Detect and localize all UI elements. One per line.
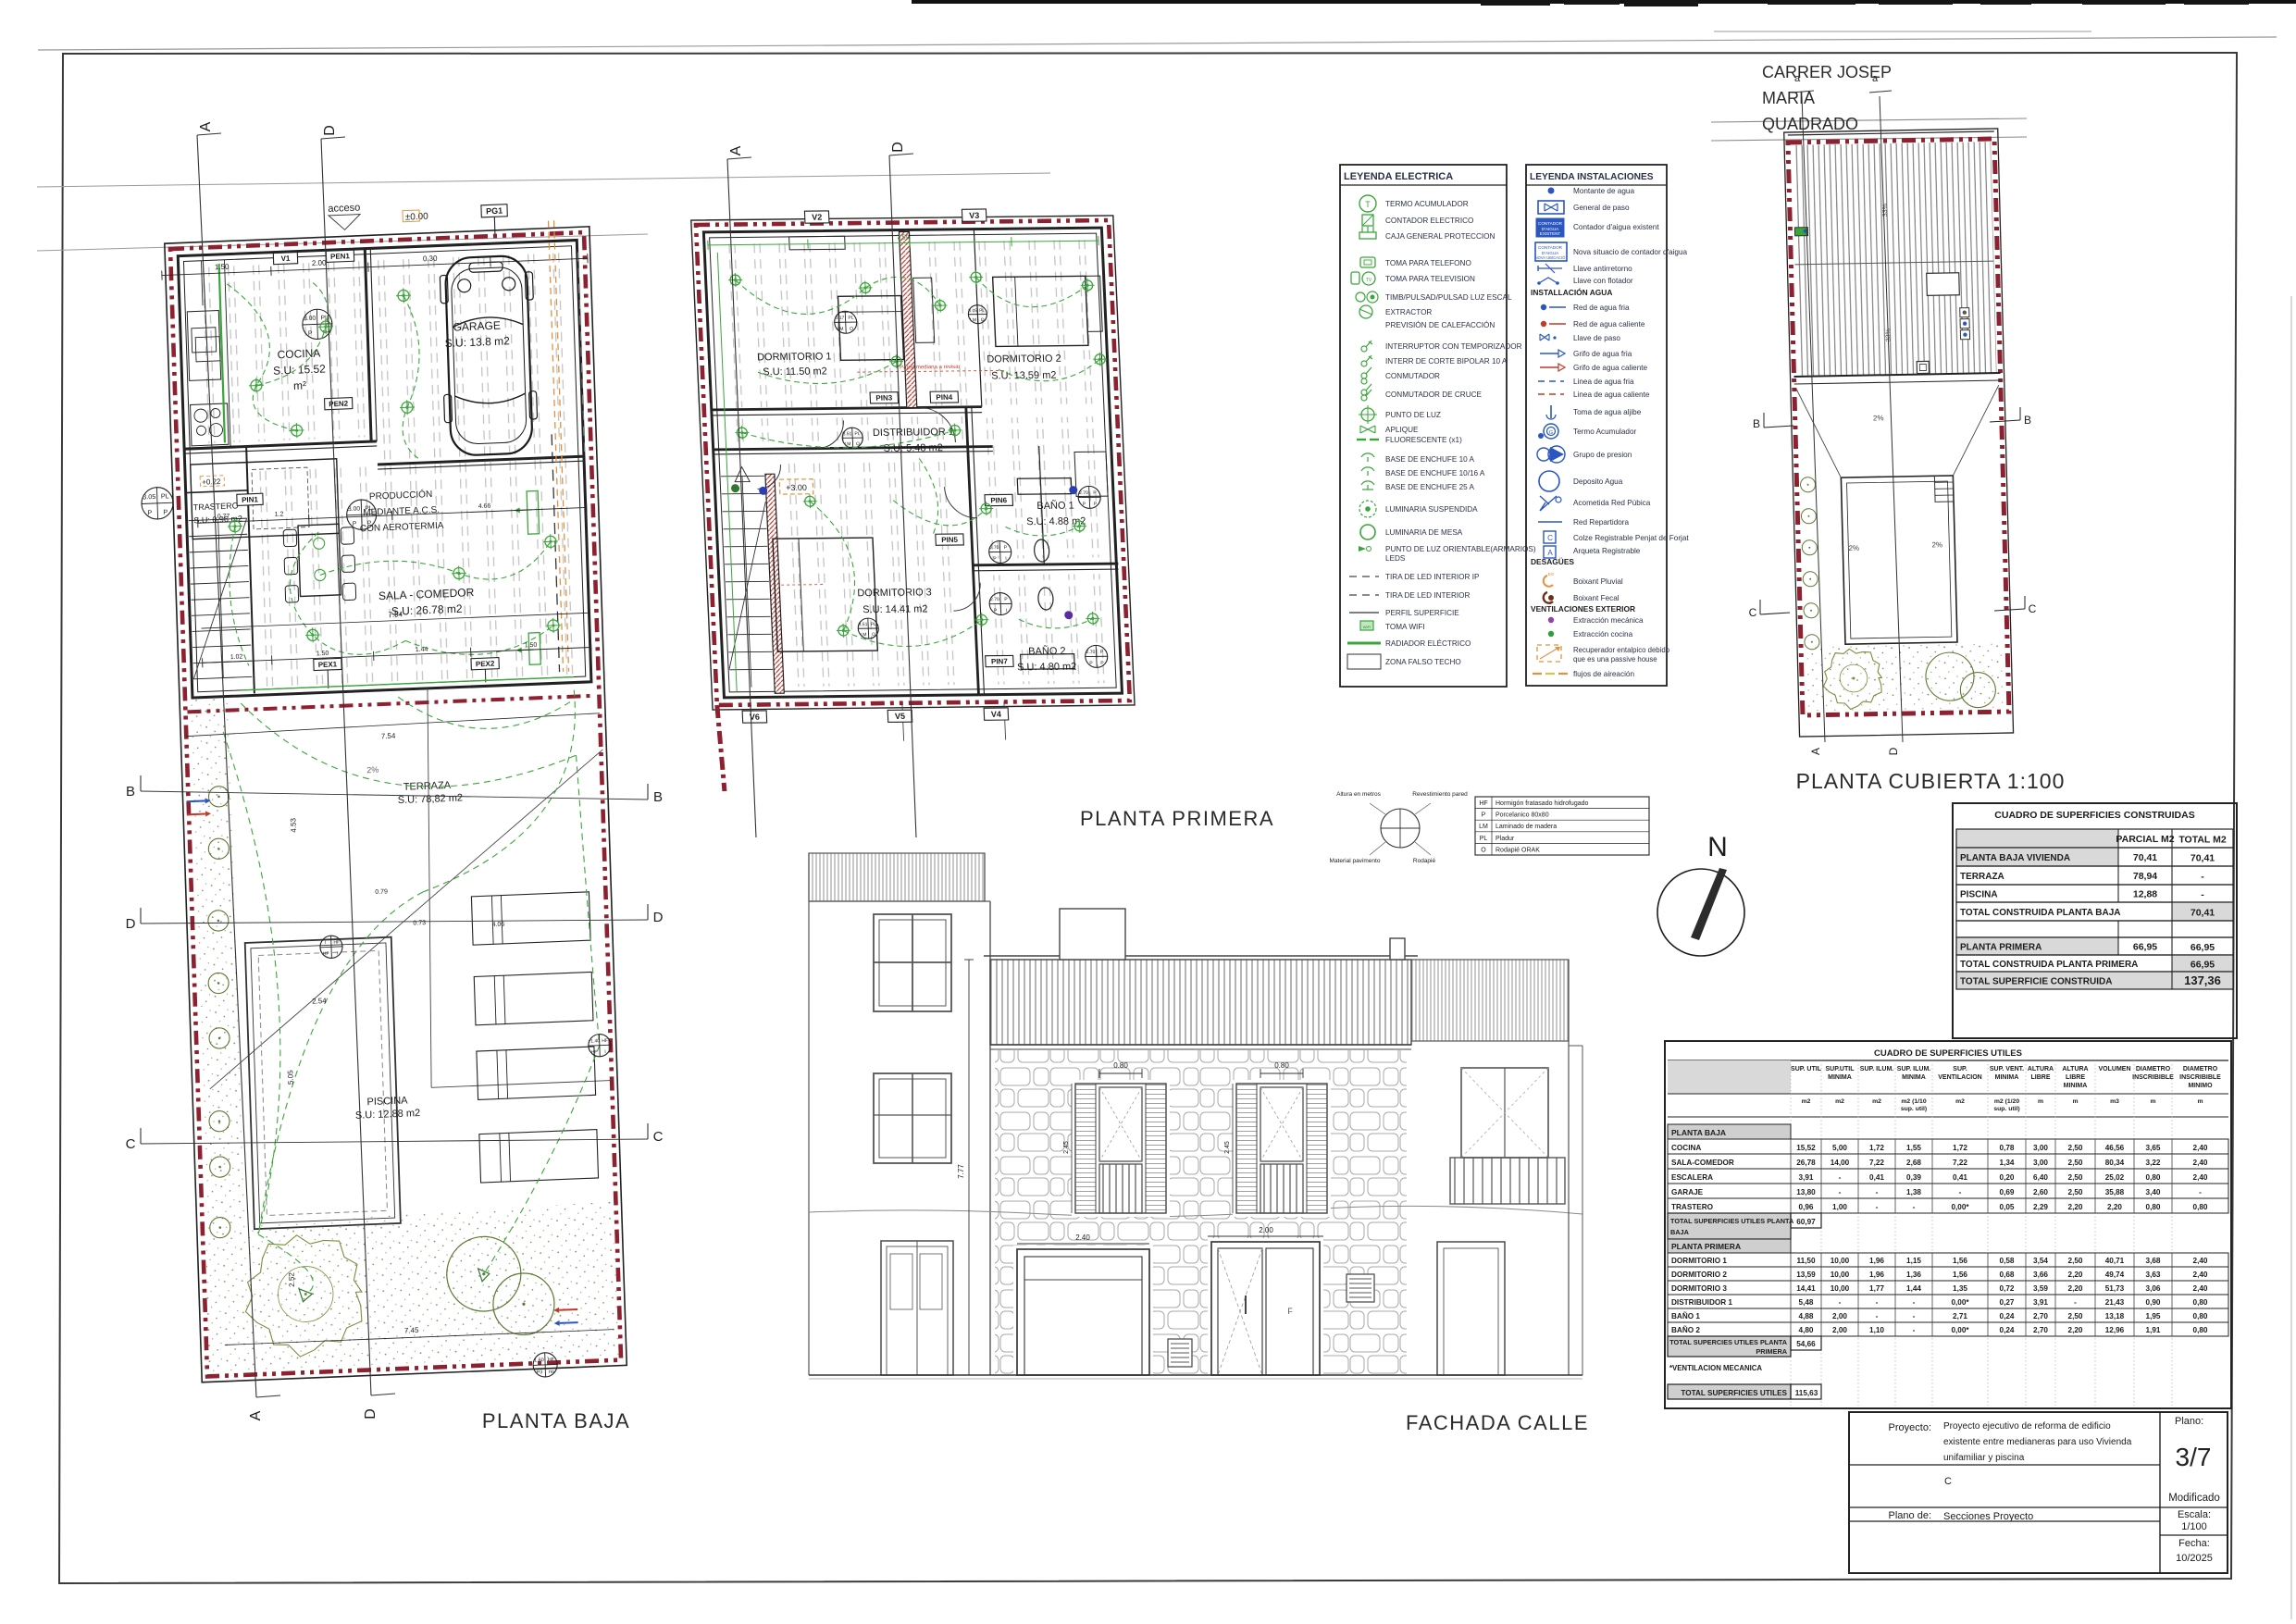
- svg-text:CUADRO DE SUPERFICIES CONSTRUI: CUADRO DE SUPERFICIES CONSTRUIDAS: [1994, 810, 2194, 821]
- svg-text:m2: m2: [1802, 1098, 1811, 1105]
- svg-text:TOTAL CONSTRUIDA PLANTA BAJA: TOTAL CONSTRUIDA PLANTA BAJA: [1960, 908, 2121, 918]
- svg-text:1.44: 1.44: [416, 647, 428, 654]
- svg-text:2,71: 2,71: [1953, 1312, 1967, 1320]
- svg-text:3/7: 3/7: [2176, 1443, 2212, 1471]
- svg-text:ZONA FALSO TECHO: ZONA FALSO TECHO: [1385, 658, 1461, 666]
- svg-text:O: O: [1481, 847, 1486, 853]
- svg-text:1,72: 1,72: [1953, 1144, 1967, 1152]
- svg-text:LM: LM: [1479, 824, 1488, 830]
- svg-text:HF: HF: [1479, 800, 1487, 807]
- svg-text:BAÑO 2: BAÑO 2: [1028, 645, 1066, 657]
- svg-text:0,80: 0,80: [2193, 1312, 2208, 1320]
- svg-text:Hormigón fratasado hidrofugado: Hormigón fratasado hidrofugado: [1496, 800, 1589, 807]
- svg-text:-: -: [1876, 1298, 1879, 1307]
- svg-text:1,96: 1,96: [1869, 1257, 1884, 1265]
- svg-text:21,43: 21,43: [2105, 1298, 2125, 1307]
- svg-text:1,35: 1,35: [1953, 1284, 1967, 1293]
- svg-text:Nova situacio de contador d'ai: Nova situacio de contador d'aigua: [1573, 248, 1688, 256]
- svg-text:MINIMA: MINIMA: [2064, 1083, 2088, 1089]
- svg-text:1,96: 1,96: [1869, 1271, 1884, 1279]
- svg-text:P: P: [367, 520, 372, 527]
- svg-text:S.U: 13.8 m2: S.U: 13.8 m2: [445, 334, 511, 350]
- svg-text:10,00: 10,00: [1831, 1271, 1850, 1279]
- svg-text:FACHADA CALLE: FACHADA CALLE: [1406, 1411, 1589, 1434]
- svg-text:V4: V4: [991, 710, 1001, 719]
- svg-text:Toma de agua aljibe: Toma de agua aljibe: [1573, 408, 1642, 416]
- svg-text:0,80: 0,80: [2193, 1298, 2208, 1307]
- svg-text:3.00: 3.00: [304, 316, 316, 323]
- svg-text:General de paso: General de paso: [1573, 204, 1630, 212]
- svg-text:PIN6: PIN6: [990, 496, 1008, 504]
- svg-text:DORMITORIO 1: DORMITORIO 1: [1671, 1257, 1727, 1265]
- svg-text:2,50: 2,50: [2068, 1173, 2083, 1182]
- svg-text:Arqueta Registrable: Arqueta Registrable: [1573, 547, 1641, 555]
- svg-text:2.00: 2.00: [1259, 1226, 1273, 1234]
- svg-text:P: P: [308, 330, 313, 337]
- svg-text:1,91: 1,91: [2146, 1326, 2161, 1334]
- svg-text:Acometida Red Púbica: Acometida Red Púbica: [1573, 499, 1651, 507]
- svg-text:A: A: [1809, 748, 1822, 755]
- svg-text:2,70: 2,70: [2033, 1312, 2048, 1320]
- svg-text:TOTAL SUPERFICIES UTILES: TOTAL SUPERFICIES UTILES: [1681, 1389, 1787, 1397]
- svg-text:Red Repartidora: Red Repartidora: [1573, 518, 1630, 527]
- svg-text:HF: HF: [591, 1049, 598, 1055]
- svg-text:Escala:: Escala:: [2178, 1509, 2211, 1520]
- svg-text:70,41: 70,41: [2191, 908, 2215, 919]
- svg-text:V3: V3: [969, 211, 979, 220]
- svg-text:D: D: [890, 142, 906, 153]
- svg-text:-: -: [2199, 1188, 2202, 1196]
- svg-text:2%: 2%: [1931, 540, 1942, 549]
- svg-text:m²: m²: [293, 378, 306, 392]
- svg-text:acceso: acceso: [328, 202, 360, 214]
- svg-text:26,78: 26,78: [1796, 1159, 1816, 1167]
- svg-text:-: -: [1913, 1326, 1916, 1334]
- svg-text:LUMINARIA SUSPENDIDA: LUMINARIA SUSPENDIDA: [1385, 505, 1478, 514]
- svg-text:Grifo de agua fria: Grifo de agua fria: [1573, 350, 1632, 358]
- svg-text:Recuperador entalpico debido: Recuperador entalpico debido: [1573, 646, 1670, 654]
- svg-text:Red de agua caliente: Red de agua caliente: [1573, 320, 1645, 329]
- svg-text:TIMB/PULSAD/PULSAD LUZ ESCAL: TIMB/PULSAD/PULSAD LUZ ESCAL: [1385, 293, 1512, 302]
- svg-text:C: C: [653, 1129, 664, 1145]
- svg-text:Linea de agua fria: Linea de agua fria: [1573, 378, 1634, 386]
- svg-text:Boixant Fecal: Boixant Fecal: [1573, 594, 1620, 602]
- svg-text:Linea de agua caliente: Linea de agua caliente: [1573, 391, 1650, 399]
- svg-text:F: F: [1287, 1307, 1293, 1316]
- svg-text:2,40: 2,40: [2193, 1144, 2208, 1152]
- svg-text:S.U: 11.50 m2: S.U: 11.50 m2: [763, 366, 827, 378]
- svg-text:2,20: 2,20: [2068, 1203, 2083, 1211]
- svg-text:7.59: 7.59: [897, 234, 910, 241]
- svg-text:CARRER JOSEP: CARRER JOSEP: [1762, 63, 1892, 81]
- svg-text:+3.00: +3.00: [786, 483, 807, 492]
- svg-text:CONTADOR ELECTRICO: CONTADOR ELECTRICO: [1385, 217, 1473, 225]
- svg-text:CUADRO DE SUPERFICIES UTILES: CUADRO DE SUPERFICIES UTILES: [1874, 1048, 2022, 1059]
- svg-text:CAJA GENERAL PROTECCION: CAJA GENERAL PROTECCION: [1385, 232, 1496, 241]
- svg-text:2%: 2%: [1873, 414, 1884, 422]
- svg-text:0,68: 0,68: [2000, 1271, 2015, 1279]
- svg-text:Material pavimento: Material pavimento: [1330, 858, 1381, 864]
- svg-text:PLANTA PRIMERA: PLANTA PRIMERA: [1671, 1242, 1741, 1251]
- svg-text:MINIMA: MINIMA: [1995, 1074, 2019, 1081]
- svg-text:FLUORESCENTE (x1): FLUORESCENTE (x1): [1385, 436, 1462, 444]
- svg-text:1,00: 1,00: [1832, 1203, 1847, 1211]
- svg-text:2,00: 2,00: [1832, 1312, 1847, 1320]
- svg-text:49,74: 49,74: [2105, 1271, 2125, 1279]
- svg-text:S.U: 15.52: S.U: 15.52: [273, 362, 326, 377]
- svg-text:0,80: 0,80: [2193, 1203, 2208, 1211]
- svg-text:I: I: [336, 951, 338, 957]
- svg-text:Fecha:: Fecha:: [2178, 1538, 2210, 1549]
- svg-text:DORMITORIO 3: DORMITORIO 3: [857, 587, 932, 599]
- svg-text:2,40: 2,40: [2193, 1173, 2208, 1182]
- svg-text:Proyecto:: Proyecto:: [1889, 1422, 1931, 1433]
- svg-text:CONMUTADOR DE CRUCE: CONMUTADOR DE CRUCE: [1385, 391, 1483, 399]
- svg-text:Rodapié: Rodapié: [1413, 858, 1436, 864]
- svg-text:2,50: 2,50: [2068, 1159, 2083, 1167]
- svg-text:2%: 2%: [366, 765, 379, 775]
- svg-text:PIN4: PIN4: [936, 393, 953, 402]
- svg-text:TOMA WIFI: TOMA WIFI: [1385, 623, 1425, 631]
- svg-text:2,50: 2,50: [2068, 1144, 2083, 1152]
- svg-text:13,80: 13,80: [1796, 1188, 1816, 1196]
- svg-text:4.06: 4.06: [492, 922, 505, 929]
- svg-text:B: B: [2024, 414, 2031, 427]
- svg-text:3.05: 3.05: [968, 308, 977, 314]
- svg-text:PL: PL: [161, 492, 169, 500]
- svg-text:2,50: 2,50: [2068, 1188, 2083, 1196]
- svg-text:0.80: 0.80: [1113, 1061, 1128, 1070]
- svg-text:1/100: 1/100: [2181, 1521, 2207, 1532]
- svg-text:*VENTILACION MECANICA: *VENTILACION MECANICA: [1669, 1364, 1762, 1372]
- svg-text:SUP.: SUP.: [1953, 1066, 1967, 1072]
- svg-text:PLANTA BAJA VIVIENDA: PLANTA BAJA VIVIENDA: [1960, 853, 2070, 863]
- svg-text:P: P: [147, 509, 152, 516]
- svg-text:LM: LM: [844, 441, 850, 447]
- svg-text:INTERRUPTOR CON TEMPORIZADOR: INTERRUPTOR CON TEMPORIZADOR: [1385, 342, 1522, 351]
- svg-text:flujos de aireación: flujos de aireación: [1573, 670, 1634, 678]
- svg-text:0,90: 0,90: [2146, 1298, 2161, 1307]
- svg-text:C: C: [1749, 606, 1757, 619]
- svg-text:-: -: [1913, 1312, 1916, 1320]
- svg-text:2,29: 2,29: [2033, 1203, 2048, 1211]
- svg-text:2.54: 2.54: [312, 997, 327, 1006]
- svg-text:12,96: 12,96: [2105, 1326, 2125, 1334]
- svg-text:7,22: 7,22: [1953, 1159, 1967, 1167]
- svg-text:m3: m3: [2110, 1098, 2119, 1105]
- svg-text:2,70: 2,70: [2033, 1326, 2048, 1334]
- svg-text:PEX2: PEX2: [476, 660, 495, 669]
- svg-text:60,97: 60,97: [1796, 1218, 1816, 1226]
- svg-text:MINIMA: MINIMA: [1828, 1074, 1852, 1081]
- svg-text:PREVISIÓN DE CALEFACCIÓN: PREVISIÓN DE CALEFACCIÓN: [1385, 320, 1495, 329]
- svg-text:0,24: 0,24: [2000, 1326, 2015, 1334]
- svg-text:70,41: 70,41: [2191, 853, 2215, 864]
- svg-text:2.45: 2.45: [1063, 1141, 1070, 1154]
- svg-text:no: no: [549, 1370, 554, 1375]
- svg-text:Altura en metros: Altura en metros: [1336, 791, 1381, 798]
- svg-text:-: -: [1876, 1188, 1879, 1196]
- svg-text:LIBRE: LIBRE: [2066, 1074, 2085, 1081]
- svg-text:I: I: [604, 1049, 606, 1055]
- svg-text:Laminado de madera: Laminado de madera: [1496, 824, 1557, 830]
- svg-text:2.70: 2.70: [1086, 650, 1095, 655]
- svg-text:A: A: [728, 145, 744, 155]
- svg-text:5,48: 5,48: [1799, 1298, 1814, 1307]
- svg-text:T: T: [1365, 200, 1371, 209]
- svg-text:2.70: 2.70: [989, 545, 999, 551]
- svg-text:MINIMA: MINIMA: [1902, 1074, 1926, 1081]
- svg-text:TOTAL SUPERFICIE CONSTRUIDA: TOTAL SUPERFICIE CONSTRUIDA: [1960, 977, 2112, 987]
- svg-text:Deposito Agua: Deposito Agua: [1573, 477, 1623, 486]
- svg-text:PARCIAL M2: PARCIAL M2: [2116, 834, 2174, 845]
- svg-text:m2 (1/20: m2 (1/20: [1994, 1098, 2019, 1105]
- svg-text:BAÑO 2: BAÑO 2: [1671, 1325, 1700, 1334]
- svg-text:Llave antirretorno: Llave antirretorno: [1573, 265, 1632, 273]
- svg-text:7.77: 7.77: [957, 1164, 965, 1179]
- svg-text:DIAMETRO: DIAMETRO: [2183, 1066, 2218, 1072]
- svg-text:Plano de:: Plano de:: [1889, 1510, 1931, 1521]
- svg-text:NOVA UBICACIÓ: NOVA UBICACIÓ: [1535, 255, 1566, 260]
- svg-text:3.51: 3.51: [859, 622, 868, 627]
- svg-text:B: B: [1753, 417, 1760, 430]
- svg-text:B: B: [126, 784, 135, 800]
- svg-text:WIFI: WIFI: [1363, 625, 1371, 629]
- svg-text:PLANTA CUBIERTA 1:100: PLANTA CUBIERTA 1:100: [1796, 769, 2066, 793]
- svg-text:PLANTA PRIMERA: PLANTA PRIMERA: [1080, 807, 1274, 830]
- svg-text:1,72: 1,72: [1869, 1144, 1884, 1152]
- svg-text:A: A: [1547, 549, 1553, 557]
- svg-text:66,95: 66,95: [2133, 942, 2157, 953]
- svg-text:-: -: [1839, 1188, 1842, 1196]
- svg-text:TOMA PARA TELEVISION: TOMA PARA TELEVISION: [1385, 275, 1475, 283]
- svg-text:1.60: 1.60: [534, 1357, 544, 1363]
- svg-text:Llave con flotador: Llave con flotador: [1573, 277, 1633, 285]
- svg-text:PL: PL: [848, 316, 854, 321]
- svg-text:7.54: 7.54: [381, 732, 396, 741]
- svg-text:ALTURA: ALTURA: [2028, 1066, 2054, 1072]
- svg-text:P: P: [323, 329, 328, 336]
- svg-text:2,60: 2,60: [2033, 1188, 2048, 1196]
- svg-text:7.45: 7.45: [404, 1326, 419, 1335]
- svg-text:70,41: 70,41: [2133, 852, 2157, 863]
- svg-text:SUP. ILUM.: SUP. ILUM.: [1860, 1066, 1893, 1072]
- svg-text:CONTADOR: CONTADOR: [1538, 245, 1563, 250]
- svg-text:2,40: 2,40: [2193, 1284, 2208, 1293]
- svg-text:14,41: 14,41: [1796, 1284, 1816, 1293]
- svg-text:2,40: 2,40: [2193, 1271, 2208, 1279]
- svg-text:137,36: 137,36: [2184, 973, 2221, 987]
- svg-text:3,06: 3,06: [2146, 1284, 2161, 1293]
- svg-text:CONTADOR: CONTADOR: [1538, 221, 1563, 226]
- svg-text:1,34: 1,34: [2000, 1159, 2015, 1167]
- svg-text:15,52: 15,52: [1796, 1144, 1816, 1152]
- svg-text:0,80: 0,80: [2146, 1173, 2161, 1182]
- svg-text:25,02: 25,02: [2105, 1173, 2125, 1182]
- svg-text:DIAMETRO: DIAMETRO: [2136, 1066, 2171, 1072]
- svg-text:-: -: [1876, 1203, 1879, 1211]
- svg-text:0,80: 0,80: [2146, 1203, 2161, 1211]
- svg-text:66,95: 66,95: [2191, 942, 2215, 953]
- svg-text:TOTAL M2: TOTAL M2: [2178, 835, 2226, 846]
- svg-text:PLANTA BAJA: PLANTA BAJA: [1671, 1128, 1726, 1137]
- svg-text:2.70: 2.70: [990, 597, 999, 602]
- svg-text:0,39: 0,39: [1906, 1173, 1921, 1182]
- svg-text:m2: m2: [1955, 1098, 1965, 1105]
- svg-text:CONMUTADOR: CONMUTADOR: [1385, 372, 1440, 380]
- svg-text:INSCRIBIBLE: INSCRIBIBLE: [2179, 1074, 2221, 1081]
- svg-text:-: -: [1839, 1298, 1842, 1307]
- svg-text:-: -: [1913, 1298, 1916, 1307]
- svg-text:sup. util): sup. util): [1901, 1106, 1927, 1112]
- svg-text:DORMITORIO 2: DORMITORIO 2: [1671, 1271, 1727, 1279]
- svg-text:DORMITORIO 2: DORMITORIO 2: [987, 353, 1061, 366]
- svg-text:TOTAL SUPERFICIES UTILES PLANT: TOTAL SUPERFICIES UTILES PLANTA: [1670, 1217, 1794, 1225]
- svg-text:Grifo de agua caliente: Grifo de agua caliente: [1573, 364, 1648, 372]
- svg-text:Contador d'aigua existent: Contador d'aigua existent: [1573, 223, 1659, 231]
- svg-text:BAÑO 1: BAÑO 1: [1671, 1311, 1700, 1320]
- svg-text:D: D: [653, 910, 664, 925]
- svg-text:COCINA: COCINA: [277, 346, 321, 361]
- svg-text:TOTAL SUPERCIES UTILES PLANTA: TOTAL SUPERCIES UTILES PLANTA: [1669, 1338, 1787, 1346]
- svg-text:TERMO ACUMULADOR: TERMO ACUMULADOR: [1385, 200, 1469, 208]
- svg-text:-: -: [1959, 1188, 1962, 1196]
- svg-text:1,15: 1,15: [1906, 1257, 1921, 1265]
- svg-text:Proyecto ejecutivo de reforma: Proyecto ejecutivo de reforma de edifici…: [1943, 1421, 2111, 1432]
- svg-text:D: D: [363, 1408, 379, 1419]
- svg-text:A: A: [198, 121, 214, 131]
- svg-text:3.17: 3.17: [835, 316, 844, 321]
- svg-text:46,56: 46,56: [2105, 1144, 2125, 1152]
- svg-text:PISCINA: PISCINA: [366, 1095, 408, 1108]
- svg-text:Modificado: Modificado: [2168, 1493, 2220, 1504]
- svg-text:INTERR DE CORTE BIPOLAR 10 A: INTERR DE CORTE BIPOLAR 10 A: [1385, 357, 1508, 366]
- svg-text:Rodapié ORAK: Rodapié ORAK: [1496, 847, 1540, 853]
- svg-text:TERRAZA: TERRAZA: [1960, 872, 2004, 882]
- svg-text:TRASTERO: TRASTERO: [193, 501, 239, 512]
- svg-text:LM: LM: [860, 632, 866, 638]
- svg-text:O: O: [872, 632, 875, 638]
- svg-text:D: D: [126, 916, 136, 932]
- svg-text:2,00: 2,00: [1832, 1326, 1847, 1334]
- svg-text:LUMINARIA DE MESA: LUMINARIA DE MESA: [1385, 528, 1463, 537]
- svg-text:0,00*: 0,00*: [1951, 1203, 1969, 1211]
- svg-text:+1.40: +1.40: [588, 1038, 600, 1045]
- svg-text:1,38: 1,38: [1906, 1188, 1921, 1196]
- svg-text:1,77: 1,77: [1869, 1284, 1884, 1293]
- svg-text:P3: P3: [536, 1370, 542, 1375]
- svg-text:4,80: 4,80: [1799, 1326, 1814, 1334]
- svg-text:Red de agua fria: Red de agua fria: [1573, 304, 1630, 312]
- svg-text:+0.22: +0.22: [202, 477, 221, 487]
- svg-text:TIRA DE LED INTERIOR: TIRA DE LED INTERIOR: [1385, 591, 1471, 600]
- svg-text:S.U: 14.41 m2: S.U: 14.41 m2: [863, 603, 928, 615]
- svg-text:1,95: 1,95: [2146, 1312, 2161, 1320]
- svg-text:O: O: [850, 327, 853, 332]
- svg-text:G: G: [1549, 430, 1553, 436]
- svg-text:P: P: [163, 509, 168, 516]
- svg-text:BAÑO 1: BAÑO 1: [1036, 500, 1074, 512]
- svg-text:HF: HF: [548, 1357, 555, 1363]
- svg-text:LEYENDA ELECTRICA: LEYENDA ELECTRICA: [1344, 171, 1453, 182]
- svg-text:PUNTO DE LUZ: PUNTO DE LUZ: [1385, 411, 1441, 419]
- svg-text:V2: V2: [812, 213, 822, 222]
- svg-text:0,72: 0,72: [2000, 1284, 2015, 1293]
- svg-text:115,63: 115,63: [1795, 1389, 1818, 1397]
- svg-text:APLIQUE: APLIQUE: [1385, 426, 1419, 434]
- svg-text:11,50: 11,50: [1796, 1257, 1815, 1265]
- svg-text:2,40: 2,40: [2193, 1257, 2208, 1265]
- svg-text:-: -: [1839, 1173, 1842, 1182]
- svg-text:LM: LM: [970, 317, 976, 323]
- svg-text:0,00*: 0,00*: [1951, 1326, 1969, 1334]
- svg-text:0,41: 0,41: [1869, 1173, 1884, 1182]
- svg-text:PL: PL: [365, 505, 373, 512]
- svg-text:existente entre medianeras par: existente entre medianeras para uso Vivi…: [1943, 1437, 2132, 1447]
- svg-text:TRASTERO: TRASTERO: [1671, 1203, 1714, 1211]
- svg-text:0,24: 0,24: [2000, 1312, 2015, 1320]
- svg-text:C: C: [2029, 602, 2037, 615]
- svg-text:0.80: 0.80: [1274, 1061, 1289, 1070]
- svg-text:unifamiliar y piscina: unifamiliar y piscina: [1943, 1453, 2025, 1463]
- svg-text:2,20: 2,20: [2068, 1271, 2083, 1279]
- svg-text:C: C: [126, 1136, 136, 1152]
- svg-text:PL: PL: [1480, 836, 1488, 842]
- svg-text:I: I: [1006, 608, 1008, 614]
- svg-text:3,65: 3,65: [2146, 1144, 2161, 1152]
- svg-text:0,80: 0,80: [2193, 1326, 2208, 1334]
- svg-text:2,20: 2,20: [2107, 1203, 2122, 1211]
- svg-text:HF: HF: [333, 939, 340, 945]
- svg-text:1,56: 1,56: [1953, 1257, 1967, 1265]
- svg-text:Revestimiento pared: Revestimiento pared: [1412, 791, 1468, 798]
- svg-text:COCINA: COCINA: [1671, 1144, 1701, 1152]
- svg-text:14,00: 14,00: [1831, 1159, 1850, 1167]
- svg-text:S.U: 13.59 m2: S.U: 13.59 m2: [991, 370, 1057, 382]
- svg-text:40,71: 40,71: [2105, 1257, 2125, 1265]
- svg-text:5.05: 5.05: [286, 1070, 294, 1085]
- svg-text:PISCINA: PISCINA: [1960, 890, 1998, 900]
- svg-text:2,50: 2,50: [2068, 1312, 2083, 1320]
- svg-text:TOMA PARA TELEFONO: TOMA PARA TELEFONO: [1385, 259, 1471, 267]
- svg-text:RADIADOR ELÉCTRICO: RADIADOR ELÉCTRICO: [1385, 638, 1471, 648]
- svg-text:-: -: [2074, 1298, 2077, 1307]
- svg-text:INSCRIBIBLE: INSCRIBIBLE: [2132, 1074, 2174, 1081]
- svg-text:-: -: [1913, 1203, 1916, 1211]
- svg-text:DISTRIBUIDOR 1: DISTRIBUIDOR 1: [873, 427, 954, 439]
- svg-text:LIBRE: LIBRE: [2031, 1074, 2051, 1081]
- svg-text:V5: V5: [895, 712, 905, 721]
- svg-text:m: m: [2038, 1098, 2043, 1105]
- svg-text:54,66: 54,66: [1796, 1340, 1816, 1348]
- svg-text:DESAGÜES: DESAGÜES: [1531, 557, 1574, 566]
- svg-text:Secciones Proyecto: Secciones Proyecto: [1943, 1511, 2033, 1522]
- svg-text:I: I: [325, 940, 327, 946]
- svg-text:Pared mediana a revisar: Pared mediana a revisar: [900, 365, 961, 371]
- svg-text:3.51: 3.51: [843, 431, 852, 437]
- svg-text:Plano:: Plano:: [2175, 1416, 2203, 1427]
- svg-text:m2: m2: [1835, 1098, 1844, 1105]
- svg-text:VENTILACION: VENTILACION: [1938, 1074, 1981, 1081]
- svg-text:TIRA DE LED INTERIOR IP: TIRA DE LED INTERIOR IP: [1385, 573, 1480, 581]
- svg-text:1.50: 1.50: [316, 651, 329, 658]
- svg-text:DISTRIBUIDOR 1: DISTRIBUIDOR 1: [1671, 1298, 1732, 1307]
- svg-text:3,63: 3,63: [2146, 1271, 2161, 1279]
- svg-text:4,88: 4,88: [1799, 1312, 1814, 1320]
- svg-text:-: -: [1876, 1312, 1879, 1320]
- svg-text:PERFIL SUPERFICIE: PERFIL SUPERFICIE: [1385, 609, 1459, 617]
- svg-text:7,22: 7,22: [1869, 1159, 1884, 1167]
